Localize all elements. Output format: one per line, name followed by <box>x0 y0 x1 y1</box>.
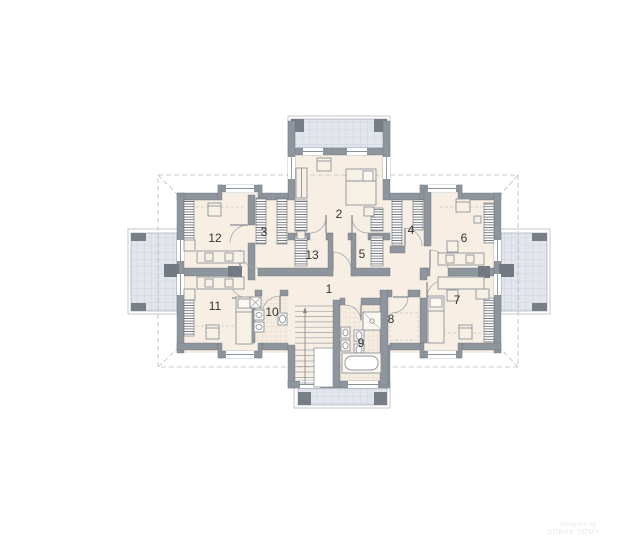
wardrobe-room7 <box>484 298 494 342</box>
room-label-6: 6 <box>461 231 468 245</box>
nightstand-room2 <box>364 207 374 216</box>
armchair-room11 <box>206 325 219 339</box>
room-label-3: 3 <box>261 225 268 239</box>
table-room7 <box>476 289 489 299</box>
room-label-11: 11 <box>209 299 222 313</box>
desk-room11 <box>197 277 244 289</box>
wardrobe-room4-right <box>413 200 423 230</box>
bottom-balcony <box>298 388 387 405</box>
floor-plan-svg: 1 2 3 4 5 6 7 8 9 10 11 12 13 Designed b… <box>0 0 638 556</box>
room-label-5: 5 <box>359 247 366 261</box>
desk-room6 <box>438 253 484 265</box>
wardrobe-room4-left <box>392 200 402 245</box>
chair-room12 <box>184 240 195 251</box>
desk-item-room6 <box>446 255 454 263</box>
room-label-8: 8 <box>388 312 395 326</box>
room-label-10: 10 <box>265 305 279 319</box>
armchair-room2 <box>317 158 331 171</box>
desk-item2-room11 <box>225 279 233 287</box>
watermark: Designed by DOBRE DOMY <box>547 521 600 536</box>
room-label-12: 12 <box>208 231 222 245</box>
desk-item-room12 <box>205 253 213 261</box>
desk-item2-room12 <box>225 253 233 261</box>
room-label-13: 13 <box>305 248 319 262</box>
wardrobe-room5 <box>371 236 383 266</box>
wardrobe-room2-left <box>295 200 307 231</box>
pillow-room11 <box>238 299 250 308</box>
room-label-7: 7 <box>454 293 461 307</box>
pillow-room2 <box>363 171 373 181</box>
desk-item-room11 <box>205 279 213 287</box>
floor-plan-page: 1 2 3 4 5 6 7 8 9 10 11 12 13 Designed b… <box>0 0 638 556</box>
armchair-room7 <box>459 325 472 339</box>
chair-room6 <box>447 241 458 252</box>
pillow-room7 <box>430 298 442 307</box>
room-label-9: 9 <box>358 336 365 350</box>
armchair-room6 <box>456 199 470 212</box>
armchair-room12 <box>208 203 221 216</box>
stair-void <box>314 348 333 387</box>
side-table-room2 <box>297 231 305 239</box>
right-chimney <box>499 264 514 277</box>
watermark-line1: Designed by <box>560 521 597 528</box>
room-label-1: 1 <box>326 282 333 296</box>
watermark-line2: DOBRE DOMY <box>547 529 600 536</box>
top-balcony <box>291 119 387 148</box>
chair-room11 <box>184 289 195 300</box>
wardrobe-room6 <box>484 203 494 243</box>
wardrobe-room3-right <box>277 198 287 244</box>
desk-room7 <box>438 277 484 289</box>
desk-item2-room6 <box>466 255 474 263</box>
left-chimney <box>164 264 179 277</box>
side-table-room6 <box>474 216 481 223</box>
room-label-2: 2 <box>336 207 343 221</box>
room-label-4: 4 <box>408 223 415 237</box>
right-wall-chimney <box>478 266 490 278</box>
desk-room12 <box>197 251 244 263</box>
